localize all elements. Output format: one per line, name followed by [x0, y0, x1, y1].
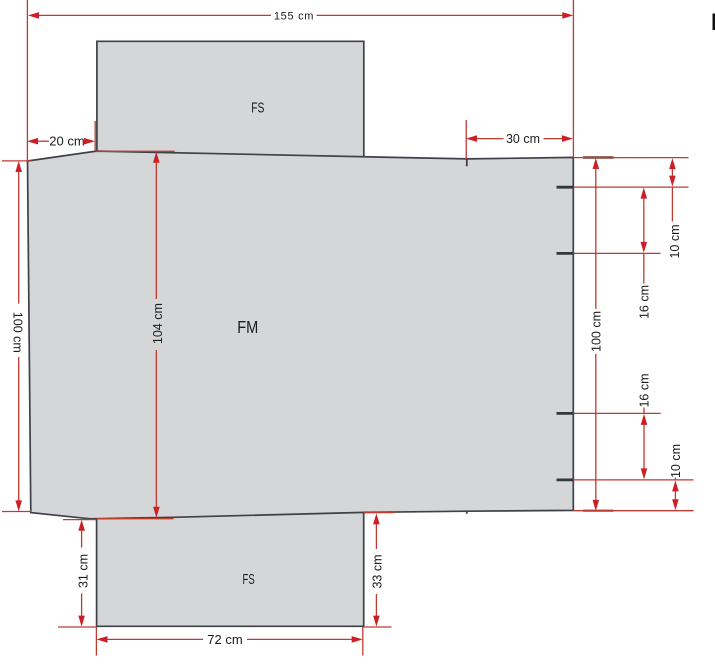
svg-text:31 cm: 31 cm — [76, 554, 90, 588]
svg-text:100 cm: 100 cm — [11, 312, 25, 353]
svg-text:10 cm: 10 cm — [668, 224, 682, 258]
svg-text:30 cm: 30 cm — [506, 132, 540, 146]
svg-text:16 cm: 16 cm — [638, 373, 652, 407]
svg-text:16 cm: 16 cm — [638, 285, 652, 319]
svg-text:104 cm: 104 cm — [151, 303, 165, 344]
svg-text:20 cm: 20 cm — [49, 134, 84, 149]
svg-text:FS: FS — [243, 571, 255, 588]
svg-text:155 cm: 155 cm — [274, 11, 314, 23]
svg-text:100 cm: 100 cm — [589, 311, 603, 352]
svg-text:72 cm: 72 cm — [207, 632, 242, 647]
svg-text:FS: FS — [251, 100, 264, 116]
svg-text:10 cm: 10 cm — [669, 444, 683, 478]
svg-text:33 cm: 33 cm — [371, 554, 385, 588]
svg-text:FM: FM — [237, 317, 258, 337]
